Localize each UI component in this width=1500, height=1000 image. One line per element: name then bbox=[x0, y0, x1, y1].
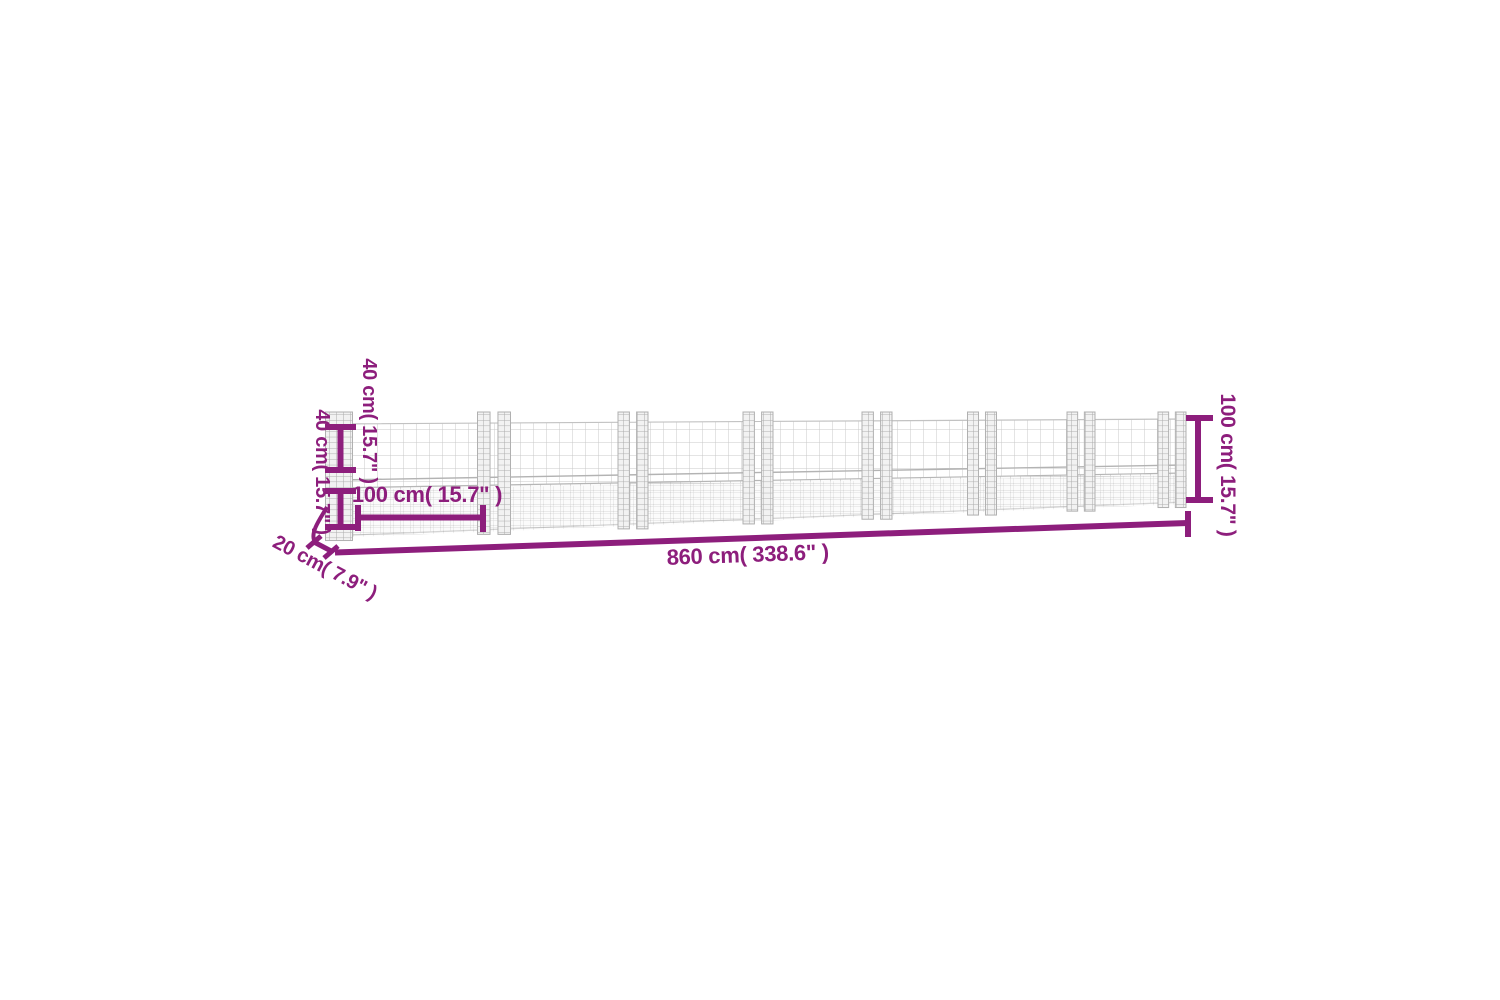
label-top-mesh-height: 40 cm( 15.7" ) bbox=[358, 358, 380, 483]
gabion-post-strip bbox=[618, 412, 629, 529]
label-post-spacing: 100 cm( 15.7" ) bbox=[352, 482, 502, 507]
gabion-post-strip bbox=[862, 412, 873, 519]
dim-overall-height bbox=[1186, 418, 1213, 500]
gabion-post-strip bbox=[881, 412, 892, 519]
gabion-post-strip bbox=[762, 412, 773, 524]
label-bottom-wall-height: 40 cm( 15.7" ) bbox=[311, 409, 333, 534]
gabion-post-strip bbox=[1067, 412, 1078, 511]
gabion-post-strip bbox=[1175, 412, 1186, 508]
label-overall-height: 100 cm( 15.7" ) bbox=[1216, 393, 1239, 536]
gabion-post-strip bbox=[1084, 412, 1095, 511]
gabion-post-strip bbox=[498, 412, 511, 534]
label-overall-length: 860 cm( 338.6" ) bbox=[666, 539, 829, 570]
gabion-post-strip bbox=[968, 412, 979, 515]
gabion-post-strip bbox=[1158, 412, 1169, 508]
label-depth: 20 cm( 7.9" ) bbox=[269, 531, 380, 604]
gabion-post-strip bbox=[637, 412, 648, 529]
gabion-dimension-diagram: 40 cm( 15.7" ) 40 cm( 15.7" ) 100 cm( 15… bbox=[0, 0, 1500, 1000]
gabion-post-strip bbox=[743, 412, 754, 524]
diagram-canvas: 40 cm( 15.7" ) 40 cm( 15.7" ) 100 cm( 15… bbox=[0, 0, 1500, 1000]
gabion-fence bbox=[326, 412, 1188, 541]
gabion-post-strip bbox=[985, 412, 996, 515]
